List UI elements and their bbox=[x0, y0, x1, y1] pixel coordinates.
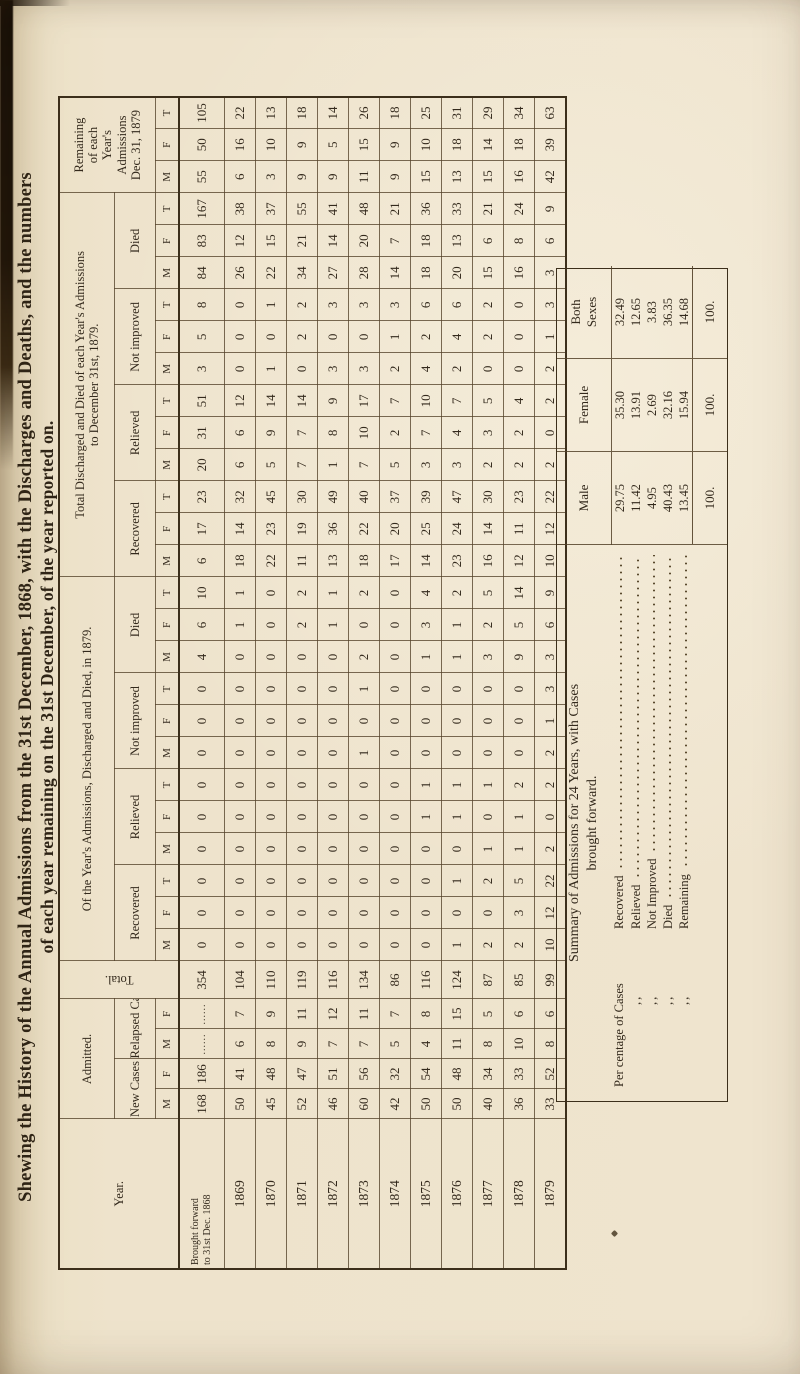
cell-value: 31 bbox=[179, 417, 225, 449]
cell-value: 0 bbox=[411, 897, 442, 929]
cell-value: 6 bbox=[179, 545, 225, 577]
summary-value-both: 12.65 bbox=[628, 266, 644, 359]
cell-value: 9 bbox=[287, 129, 318, 161]
cell-value: 354 bbox=[179, 961, 225, 999]
cell-value: 1 bbox=[380, 321, 411, 353]
cell-value: 2 bbox=[287, 577, 318, 609]
cell-value: 0 bbox=[442, 705, 473, 737]
cell-value: 0 bbox=[179, 801, 225, 833]
cell-value: 33 bbox=[504, 1059, 535, 1089]
cell-value: 83 bbox=[179, 225, 225, 257]
header-relieved-total: Relieved bbox=[115, 385, 156, 481]
document-title-line2: of each year remaining on the 31st Decem… bbox=[37, 40, 58, 1334]
cell-value: 0 bbox=[318, 865, 349, 897]
subheader-m: M bbox=[156, 1089, 180, 1119]
subheader-m: M bbox=[156, 449, 180, 481]
cell-value: 0 bbox=[225, 321, 256, 353]
cell-value: 10 bbox=[411, 129, 442, 161]
cell-value: 2 bbox=[473, 865, 504, 897]
cell-value: 18 bbox=[287, 97, 318, 129]
summary-value-male: 4.95 bbox=[644, 452, 660, 545]
cell-value: 0 bbox=[179, 833, 225, 865]
cell-value: 0 bbox=[225, 353, 256, 385]
cell-value: 13 bbox=[318, 545, 349, 577]
cell-value: 0 bbox=[380, 577, 411, 609]
cell-value: 9 bbox=[504, 641, 535, 673]
cell-year: 1870 bbox=[256, 1119, 287, 1269]
cell-value: 85 bbox=[504, 961, 535, 999]
cell-value: 0 bbox=[380, 865, 411, 897]
header-remaining: Remainingof eachYear'sAdmissionsDec. 31,… bbox=[59, 97, 156, 193]
cell-value: 14 bbox=[318, 97, 349, 129]
cell-value: 0 bbox=[225, 929, 256, 961]
cell-value: 0 bbox=[473, 737, 504, 769]
cell-value: 0 bbox=[225, 641, 256, 673]
cell-value: 21 bbox=[473, 193, 504, 225]
cell-value: 16 bbox=[504, 257, 535, 289]
cell-value: 27 bbox=[318, 257, 349, 289]
cell-value: 4 bbox=[179, 641, 225, 673]
cell-value: 37 bbox=[256, 193, 287, 225]
cell-value: 23 bbox=[504, 481, 535, 513]
cell-value: 0 bbox=[318, 769, 349, 801]
cell-value: 2 bbox=[287, 321, 318, 353]
cell-value: 1 bbox=[318, 609, 349, 641]
cell-value: 26 bbox=[225, 257, 256, 289]
cell-value: 0 bbox=[225, 737, 256, 769]
table-row: 1869504167104000000000011181432661200026… bbox=[225, 97, 256, 1269]
cell-value: 1 bbox=[256, 353, 287, 385]
cell-value: 0 bbox=[473, 353, 504, 385]
cell-year: 1869 bbox=[225, 1119, 256, 1269]
header-notimproved-1879: Not improved bbox=[115, 673, 156, 769]
cell-value: 18 bbox=[504, 129, 535, 161]
cell-value: 0 bbox=[287, 801, 318, 833]
cell-value: 2 bbox=[504, 769, 535, 801]
cell-value: 45 bbox=[256, 481, 287, 513]
cell-value: 47 bbox=[442, 481, 473, 513]
cell-value: 33 bbox=[442, 193, 473, 225]
subheader-t: T bbox=[156, 97, 180, 129]
cell-value: 9 bbox=[318, 385, 349, 417]
header-relieved-1879: Relieved bbox=[115, 769, 156, 865]
cell-value: 7 bbox=[349, 1029, 380, 1059]
cell-value: 15 bbox=[411, 161, 442, 193]
cell-value: 2 bbox=[504, 417, 535, 449]
cell-value: 0 bbox=[318, 705, 349, 737]
cell-value: 105 bbox=[179, 97, 225, 129]
cell-value: 63 bbox=[535, 97, 567, 129]
cell-value: 7 bbox=[380, 999, 411, 1029]
cell-value: 1 bbox=[411, 641, 442, 673]
cell-value: 1 bbox=[256, 289, 287, 321]
cell-value: 23 bbox=[179, 481, 225, 513]
cell-value: 0 bbox=[473, 801, 504, 833]
cell-value: 14 bbox=[225, 513, 256, 545]
header-in-1879: Of the Year's Admissions, Discharged and… bbox=[59, 577, 115, 961]
cell-value: 2 bbox=[473, 929, 504, 961]
table-row: 1878363310685235112000951412112322400016… bbox=[504, 97, 535, 1269]
cell-value: 18 bbox=[349, 545, 380, 577]
cell-value: 9 bbox=[287, 1029, 318, 1059]
cell-value: 4 bbox=[411, 353, 442, 385]
cell-value: 0 bbox=[225, 289, 256, 321]
summary-row-label: ,,Not Improved bbox=[644, 545, 660, 1102]
cell-value: 6 bbox=[225, 417, 256, 449]
cell-value: 8 bbox=[179, 289, 225, 321]
table-row: 1876504811151241010110001122324473472462… bbox=[442, 97, 473, 1269]
cell-value: 16 bbox=[504, 161, 535, 193]
cell-value: 0 bbox=[256, 929, 287, 961]
cell-value: 2 bbox=[504, 449, 535, 481]
cell-value: 16 bbox=[225, 129, 256, 161]
table-header: Year. Admitted. Total. Of the Year's Adm… bbox=[59, 97, 179, 1269]
cell-value: 0 bbox=[349, 801, 380, 833]
cell-value: 6 bbox=[442, 289, 473, 321]
subheader-m: M bbox=[156, 737, 180, 769]
cell-value: 0 bbox=[225, 833, 256, 865]
cell-value: 10 bbox=[179, 577, 225, 609]
cell-value: 0 bbox=[225, 769, 256, 801]
summary-total-female: 100. bbox=[693, 359, 728, 452]
cell-value: 14 bbox=[380, 257, 411, 289]
cell-value: 110 bbox=[256, 961, 287, 999]
cell-value: 7 bbox=[442, 385, 473, 417]
cell-value: 3 bbox=[318, 289, 349, 321]
cell-value: 3 bbox=[256, 161, 287, 193]
cell-value: 3 bbox=[318, 353, 349, 385]
cell-value: 3 bbox=[411, 449, 442, 481]
cell-value: 0 bbox=[318, 737, 349, 769]
cell-value: 9 bbox=[256, 999, 287, 1029]
cell-value: 48 bbox=[256, 1059, 287, 1089]
cell-value: 0 bbox=[349, 865, 380, 897]
cell-value: 0 bbox=[179, 769, 225, 801]
cell-value: 0 bbox=[256, 801, 287, 833]
cell-value: 1 bbox=[225, 609, 256, 641]
cell-value: 49 bbox=[318, 481, 349, 513]
cell-value: 9 bbox=[287, 161, 318, 193]
cell-value: 5 bbox=[380, 449, 411, 481]
summary-value-both: 3.83 bbox=[644, 266, 660, 359]
cell-value: 3 bbox=[473, 417, 504, 449]
cell-value: 0 bbox=[256, 865, 287, 897]
cell-value: 5 bbox=[318, 129, 349, 161]
cell-value: 18 bbox=[442, 129, 473, 161]
subheader-t: T bbox=[156, 481, 180, 513]
cell-value: 6 bbox=[473, 225, 504, 257]
cell-value: 0 bbox=[349, 897, 380, 929]
subheader-t: T bbox=[156, 193, 180, 225]
cell-value: 3 bbox=[504, 897, 535, 929]
subheader-m: M bbox=[156, 833, 180, 865]
cell-value: 45 bbox=[256, 1089, 287, 1119]
cell-value: 48 bbox=[349, 193, 380, 225]
cell-value: 14 bbox=[318, 225, 349, 257]
cell-value: 4 bbox=[411, 1029, 442, 1059]
cell-year: Brought forwardto 31st Dec. 1868 bbox=[179, 1119, 225, 1269]
subheader-t: T bbox=[156, 577, 180, 609]
cell-value: 8 bbox=[256, 1029, 287, 1059]
cell-value: 0 bbox=[380, 897, 411, 929]
cell-value: 0 bbox=[411, 865, 442, 897]
cell-value: 0 bbox=[380, 929, 411, 961]
subheader-m: M bbox=[156, 353, 180, 385]
table-row: 1875505448116000011000134142539371042618… bbox=[411, 97, 442, 1269]
cell-value: 9 bbox=[256, 417, 287, 449]
subheader-f: F bbox=[156, 417, 180, 449]
cell-value: 5 bbox=[504, 609, 535, 641]
cell-value: 32 bbox=[380, 1059, 411, 1089]
cell-year: 1876 bbox=[442, 1119, 473, 1269]
ink-mark bbox=[611, 1230, 618, 1237]
cell-value: 15 bbox=[256, 225, 287, 257]
cell-value: 0 bbox=[179, 737, 225, 769]
cell-value: 0 bbox=[225, 801, 256, 833]
header-admitted: Admitted. bbox=[59, 999, 115, 1119]
cell-value: 7 bbox=[380, 225, 411, 257]
cell-value: 0 bbox=[473, 897, 504, 929]
cell-value: 1 bbox=[349, 673, 380, 705]
summary-row: Per centage of CasesRecovered29.7535.303… bbox=[612, 266, 629, 1101]
cell-value: 0 bbox=[318, 833, 349, 865]
cell-value: 20 bbox=[349, 225, 380, 257]
cell-value: 0 bbox=[349, 705, 380, 737]
cell-value: 9 bbox=[380, 161, 411, 193]
cell-value: 8 bbox=[318, 417, 349, 449]
cell-value: 0 bbox=[287, 673, 318, 705]
cell-value: 6 bbox=[225, 449, 256, 481]
cell-value: 39 bbox=[411, 481, 442, 513]
cell-value: 25 bbox=[411, 97, 442, 129]
cell-value: 52 bbox=[287, 1089, 318, 1119]
cell-value: 0 bbox=[349, 929, 380, 961]
summary-row-label: ,,Died bbox=[660, 545, 676, 1102]
rotated-table-sheet: Shewing the History of the Annual Admiss… bbox=[0, 0, 800, 1374]
cell-value: 0 bbox=[411, 929, 442, 961]
header-new-cases: New Cases bbox=[115, 1059, 156, 1119]
cell-value: 13 bbox=[442, 225, 473, 257]
cell-value: 20 bbox=[380, 513, 411, 545]
summary-row-label: ,,Relieved bbox=[628, 545, 644, 1102]
cell-value: 5 bbox=[380, 1029, 411, 1059]
cell-value: 7 bbox=[380, 385, 411, 417]
table-row: 1877403485872021010003251614302350221562… bbox=[473, 97, 504, 1269]
cell-value: 86 bbox=[380, 961, 411, 999]
cell-value: 0 bbox=[287, 897, 318, 929]
cell-value: 14 bbox=[256, 385, 287, 417]
cell-value: 29 bbox=[473, 97, 504, 129]
cell-value: 14 bbox=[473, 129, 504, 161]
cell-value: 3 bbox=[349, 289, 380, 321]
cell-value: 15 bbox=[349, 129, 380, 161]
cell-value: 50 bbox=[225, 1089, 256, 1119]
summary-header-both: Both Sexes bbox=[557, 266, 612, 359]
cell-value: 0 bbox=[225, 897, 256, 929]
cell-value: 1 bbox=[504, 833, 535, 865]
cell-value: 12 bbox=[225, 385, 256, 417]
cell-value: 7 bbox=[411, 417, 442, 449]
subheader-f: F bbox=[156, 801, 180, 833]
cell-value: 0 bbox=[256, 705, 287, 737]
subheader-m: M bbox=[156, 1029, 180, 1059]
subheader-f: F bbox=[156, 705, 180, 737]
cell-value: 50 bbox=[179, 129, 225, 161]
cell-value: 22 bbox=[349, 513, 380, 545]
cell-value: 0 bbox=[256, 577, 287, 609]
cell-value: 0 bbox=[256, 769, 287, 801]
cell-value: 50 bbox=[442, 1089, 473, 1119]
summary-value-male: 11.42 bbox=[628, 452, 644, 545]
cell-value: 23 bbox=[442, 545, 473, 577]
cell-value: 0 bbox=[411, 833, 442, 865]
subheader-t: T bbox=[156, 673, 180, 705]
cell-value: 87 bbox=[473, 961, 504, 999]
cell-value: 18 bbox=[411, 257, 442, 289]
subheader-f: F bbox=[156, 129, 180, 161]
cell-value: 0 bbox=[380, 641, 411, 673]
cell-value: 23 bbox=[256, 513, 287, 545]
cell-value: 0 bbox=[256, 833, 287, 865]
cell-value: 119 bbox=[287, 961, 318, 999]
summary-value-female: 35.30 bbox=[612, 359, 629, 452]
summary-row: ,,Died40.4332.1636.35 bbox=[660, 266, 676, 1101]
cell-value: 1 bbox=[442, 801, 473, 833]
cell-value: 7 bbox=[349, 449, 380, 481]
cell-value: 22 bbox=[225, 97, 256, 129]
cell-value: 9 bbox=[318, 161, 349, 193]
cell-value: 3 bbox=[349, 353, 380, 385]
cell-value: 46 bbox=[318, 1089, 349, 1119]
table-row: 1871524791111900000000002211193077140223… bbox=[287, 97, 318, 1269]
summary-row-label: Per centage of CasesRecovered bbox=[612, 545, 629, 1102]
cell-value: 0 bbox=[504, 353, 535, 385]
header-recovered-1879: Recovered bbox=[115, 865, 156, 961]
cell-value: 3 bbox=[442, 449, 473, 481]
cell-value: 0 bbox=[442, 897, 473, 929]
cell-value: 5 bbox=[473, 385, 504, 417]
cell-value: 37 bbox=[380, 481, 411, 513]
cell-value: 1 bbox=[411, 801, 442, 833]
cell-value: 0 bbox=[287, 737, 318, 769]
cell-value: 1 bbox=[442, 769, 473, 801]
cell-value: 18 bbox=[225, 545, 256, 577]
cell-value: 20 bbox=[442, 257, 473, 289]
cell-value: 22 bbox=[256, 257, 287, 289]
subheader-t: T bbox=[156, 289, 180, 321]
summary-value-female: 2.69 bbox=[644, 359, 660, 452]
cell-value: 0 bbox=[287, 929, 318, 961]
cell-value: 2 bbox=[473, 289, 504, 321]
cell-value: 0 bbox=[179, 865, 225, 897]
summary-value-both: 14.68 bbox=[676, 266, 693, 359]
cell-value: 10 bbox=[504, 1029, 535, 1059]
cell-value: 1 bbox=[318, 577, 349, 609]
cell-value: ...... bbox=[179, 1029, 225, 1059]
cell-value: 1 bbox=[442, 609, 473, 641]
cell-value: 0 bbox=[349, 321, 380, 353]
cell-value: 0 bbox=[318, 673, 349, 705]
cell-value: 8 bbox=[411, 999, 442, 1029]
cell-value: 0 bbox=[256, 673, 287, 705]
subheader-t: T bbox=[156, 865, 180, 897]
summary-header-female: Female bbox=[557, 359, 612, 452]
cell-value: 5 bbox=[473, 999, 504, 1029]
cell-value: 6 bbox=[225, 161, 256, 193]
subheader-f: F bbox=[156, 609, 180, 641]
subheader-m: M bbox=[156, 545, 180, 577]
table-row: 1872465171211600000000001113364918930327… bbox=[318, 97, 349, 1269]
cell-value: 2 bbox=[473, 321, 504, 353]
cell-value: 12 bbox=[225, 225, 256, 257]
summary-value-both: 36.35 bbox=[660, 266, 676, 359]
cell-value: 4 bbox=[504, 385, 535, 417]
cell-value: 0 bbox=[380, 673, 411, 705]
cell-value: 2 bbox=[442, 577, 473, 609]
cell-value: 2 bbox=[442, 353, 473, 385]
cell-value: 30 bbox=[287, 481, 318, 513]
cell-value: 16 bbox=[473, 545, 504, 577]
cell-value: 0 bbox=[256, 897, 287, 929]
cell-value: 0 bbox=[256, 641, 287, 673]
cell-value: 34 bbox=[287, 257, 318, 289]
summary-box: Summary of Admissions for 24 Years, with… bbox=[556, 268, 728, 1102]
cell-value: 10 bbox=[349, 417, 380, 449]
cell-value: 34 bbox=[504, 97, 535, 129]
cell-year: 1877 bbox=[473, 1119, 504, 1269]
cell-value: 0 bbox=[318, 321, 349, 353]
cell-value: 186 bbox=[179, 1059, 225, 1089]
subheader-f: F bbox=[156, 225, 180, 257]
cell-year: 1872 bbox=[318, 1119, 349, 1269]
summary-value-female: 32.16 bbox=[660, 359, 676, 452]
cell-value: 14 bbox=[287, 385, 318, 417]
summary-row: ,,Relieved11.4213.9112.65 bbox=[628, 266, 644, 1101]
summary-value-female: 13.91 bbox=[628, 359, 644, 452]
cell-value: 15 bbox=[473, 161, 504, 193]
cell-value: 0 bbox=[380, 833, 411, 865]
subheader-t: T bbox=[156, 385, 180, 417]
subheader-f: F bbox=[156, 513, 180, 545]
summary-total-label bbox=[693, 545, 728, 1102]
cell-value: 0 bbox=[411, 737, 442, 769]
header-died-1879: Died bbox=[115, 577, 156, 673]
cell-value: 55 bbox=[179, 161, 225, 193]
cell-value: 17 bbox=[179, 513, 225, 545]
cell-value: 19 bbox=[287, 513, 318, 545]
cell-value: 1 bbox=[318, 449, 349, 481]
cell-value: 10 bbox=[256, 129, 287, 161]
subheader-t: T bbox=[156, 769, 180, 801]
cell-value: 11 bbox=[287, 999, 318, 1029]
cell-value: 0 bbox=[504, 289, 535, 321]
summary-row: ,,Remaining13.4515.9414.68 bbox=[676, 266, 693, 1101]
subheader-m: M bbox=[156, 161, 180, 193]
cell-value: 12 bbox=[504, 545, 535, 577]
cell-value: 5 bbox=[256, 449, 287, 481]
cell-value: 2 bbox=[411, 321, 442, 353]
cell-value: 12 bbox=[318, 999, 349, 1029]
cell-value: 0 bbox=[380, 705, 411, 737]
cell-value: 25 bbox=[411, 513, 442, 545]
cell-value: 0 bbox=[287, 705, 318, 737]
cell-value: 11 bbox=[349, 999, 380, 1029]
cell-value: 4 bbox=[442, 321, 473, 353]
cell-year: 1878 bbox=[504, 1119, 535, 1269]
table-row: Brought forwardto 31st Dec. 1868168186..… bbox=[179, 97, 225, 1269]
cell-value: 36 bbox=[504, 1089, 535, 1119]
cell-value: 17 bbox=[380, 545, 411, 577]
